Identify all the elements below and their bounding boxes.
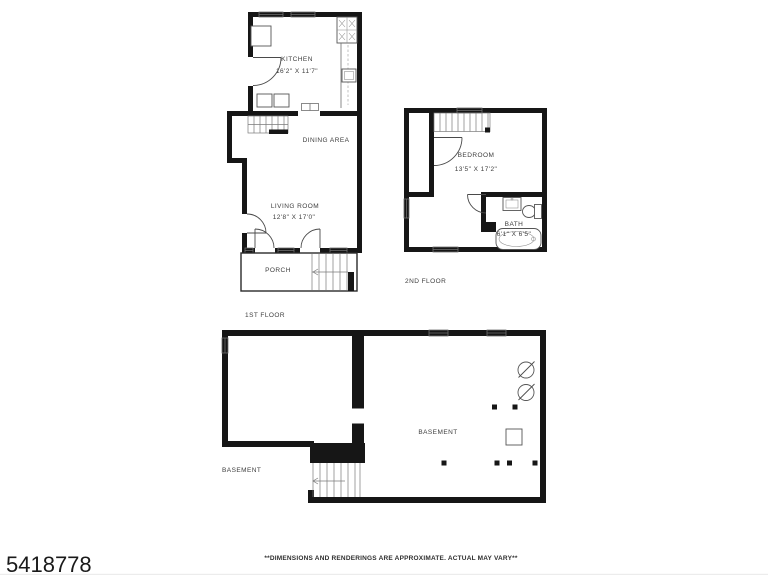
living-room-dimensions: 12'8" X 17'0" [273, 214, 316, 221]
kitchen-fixture [257, 94, 289, 107]
porch-label: PORCH [265, 267, 291, 274]
bath-label: BATH [505, 221, 524, 228]
bedroom-dimensions: 13'5" X 17'2" [455, 166, 498, 173]
living-room-label: LIVING ROOM [271, 203, 319, 210]
porch-staircase-icon [312, 254, 348, 290]
first-floor-plan: KITCHEN 16'2" X 11'7" DINING AREA LIVING… [227, 12, 362, 319]
dining-area-label: DINING AREA [303, 137, 350, 144]
second-floor-staircase-icon [434, 113, 490, 133]
bath-dimensions: 6'1" X 6'5" [497, 231, 532, 238]
basement-staircase-icon [313, 463, 360, 497]
utility-symbol-icon [518, 362, 535, 401]
basement-walls [222, 330, 546, 503]
second-floor-label: 2ND FLOOR [405, 278, 446, 285]
living-room-side-door [247, 214, 266, 233]
kitchen-dining-door [302, 104, 319, 111]
basement-plan: BASEMENT BASEMENT [222, 330, 546, 503]
second-floor-plan: BEDROOM 13'5" X 17'2" BATH 6'1" X 6'5" 2… [404, 108, 547, 285]
stove-icon [337, 17, 357, 43]
utility-box-icon [506, 429, 522, 445]
bedroom-label: BEDROOM [458, 152, 495, 159]
basement-room-label: BASEMENT [418, 429, 457, 436]
bath-sink-icon [503, 198, 521, 211]
sink-icon [342, 69, 356, 82]
living-room-front-door [255, 229, 274, 248]
footer-divider [0, 574, 768, 575]
disclaimer-text: **DIMENSIONS AND RENDERINGS ARE APPROXIM… [264, 555, 517, 562]
kitchen-dimensions: 16'2" X 11'7" [276, 68, 318, 75]
kitchen-cabinet-icon [251, 26, 271, 46]
first-floor-staircase-icon [248, 116, 288, 134]
porch-door [301, 229, 320, 248]
first-floor-label: 1ST FLOOR [245, 312, 285, 319]
footer: **DIMENSIONS AND RENDERINGS ARE APPROXIM… [0, 552, 768, 576]
basement-label: BASEMENT [222, 467, 261, 474]
floor-plan-image: KITCHEN 16'2" X 11'7" DINING AREA LIVING… [0, 0, 768, 576]
floor-plan-canvas: KITCHEN 16'2" X 11'7" DINING AREA LIVING… [0, 0, 768, 576]
listing-id: 5418778 [6, 552, 92, 576]
toilet-icon [523, 205, 542, 219]
kitchen-label: KITCHEN [281, 56, 313, 63]
